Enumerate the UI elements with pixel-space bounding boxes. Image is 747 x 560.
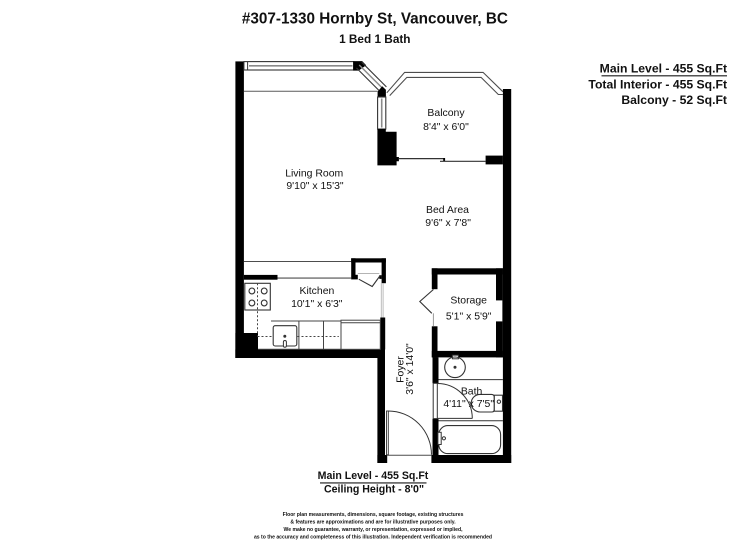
svg-text:3'6" x 14'0": 3'6" x 14'0" [405,343,416,395]
svg-text:Main Level - 455 Sq.Ft: Main Level - 455 Sq.Ft [318,470,429,482]
svg-text:Balcony - 52 Sq.Ft: Balcony - 52 Sq.Ft [621,93,727,107]
svg-text:1 Bed 1 Bath: 1 Bed 1 Bath [339,32,410,46]
svg-text:Bath: Bath [461,386,483,397]
svg-text:Bed Area: Bed Area [426,205,469,216]
svg-text:Floor plan measurements, dimen: Floor plan measurements, dimensions, squ… [283,512,464,518]
svg-text:as to the accuracy and complet: as to the accuracy and completeness of t… [254,535,492,541]
svg-text:5'1" x 5'9": 5'1" x 5'9" [446,312,492,323]
svg-text:Storage: Storage [450,296,487,307]
svg-text:Main Level - 455 Sq.Ft: Main Level - 455 Sq.Ft [600,61,727,75]
svg-text:& features are approximations: & features are approximations and are fo… [290,520,456,526]
svg-text:8'4" x 6'0": 8'4" x 6'0" [423,122,469,133]
svg-text:Kitchen: Kitchen [299,286,334,297]
svg-text:9'10" x 15'3": 9'10" x 15'3" [286,181,344,192]
svg-text:Ceiling Height - 8'0": Ceiling Height - 8'0" [324,484,424,496]
svg-text:We make no guarantee, warranty: We make no guarantee, warranty, or repre… [284,527,464,533]
svg-text:Total Interior - 455 Sq.Ft: Total Interior - 455 Sq.Ft [588,78,727,92]
svg-text:4'11" x 7'5": 4'11" x 7'5" [443,399,494,410]
svg-text:9'6" x 7'8": 9'6" x 7'8" [425,218,471,229]
svg-text:#307-1330 Hornby St, Vancouver: #307-1330 Hornby St, Vancouver, BC [242,11,508,28]
svg-text:Living Room: Living Room [285,168,343,179]
svg-text:Balcony: Balcony [427,108,465,119]
svg-text:10'1" x 6'3": 10'1" x 6'3" [291,299,343,310]
